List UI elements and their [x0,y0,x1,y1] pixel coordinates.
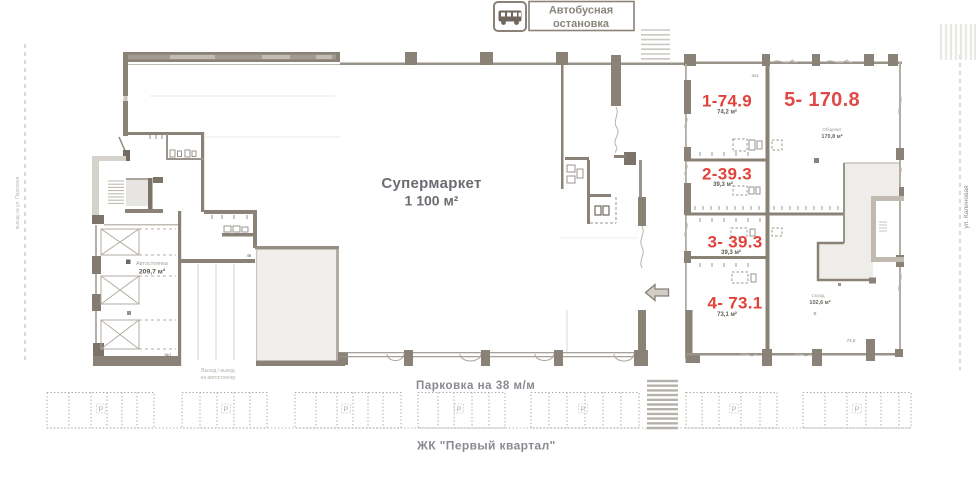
svg-text:P: P [855,407,860,414]
svg-text:Склад: Склад [811,293,824,298]
svg-text:4- 73.1: 4- 73.1 [707,294,762,313]
svg-text:P: P [344,407,349,414]
svg-text:74,2 м²: 74,2 м² [717,109,737,116]
svg-text:на автостоянку: на автостоянку [201,375,237,381]
svg-text:39,3 м²: 39,3 м² [713,181,733,188]
svg-text:3- 39.3: 3- 39.3 [707,233,762,252]
svg-text:P: P [457,407,462,414]
svg-text:74,0: 74,0 [847,338,856,343]
svg-text:В: В [813,311,816,316]
svg-text:P: P [224,407,229,414]
svg-text:выезд на ул. Парковая: выезд на ул. Парковая [15,176,21,229]
svg-text:2-39.3: 2-39.3 [702,165,752,184]
svg-text:ул. Калиновая: ул. Калиновая [963,185,970,229]
svg-text:209,7 м²: 209,7 м² [139,269,166,276]
svg-text:Выход / выход: Выход / выход [201,368,234,374]
svg-text:39,3 м²: 39,3 м² [721,249,741,256]
svg-text:остановка: остановка [553,18,610,30]
svg-text:102,6 м²: 102,6 м² [809,299,830,306]
svg-text:1-74.9: 1-74.9 [702,92,752,111]
svg-text:№1: №1 [164,353,172,358]
svg-text:Общепит: Общепит [822,127,841,132]
svg-text:P: P [581,407,586,414]
svg-text:Автобусная: Автобусная [549,5,613,17]
svg-text:1 100 м²: 1 100 м² [405,193,459,209]
svg-text:P: P [732,407,737,414]
svg-text:ЖК "Первый квартал": ЖК "Первый квартал" [416,439,556,453]
svg-text:73,1 м²: 73,1 м² [717,311,737,318]
svg-text:5- 170.8: 5- 170.8 [784,89,860,111]
svg-text:170,8 м²: 170,8 м² [821,133,842,140]
svg-text:зн1: зн1 [751,73,759,78]
svg-text:4в: 4в [247,253,253,258]
svg-text:P: P [99,407,104,414]
svg-text:Автостоянка: Автостоянка [136,261,169,267]
svg-text:Супермаркет: Супермаркет [381,175,481,192]
svg-text:Парковка на 38 м/м: Парковка на 38 м/м [416,380,535,392]
